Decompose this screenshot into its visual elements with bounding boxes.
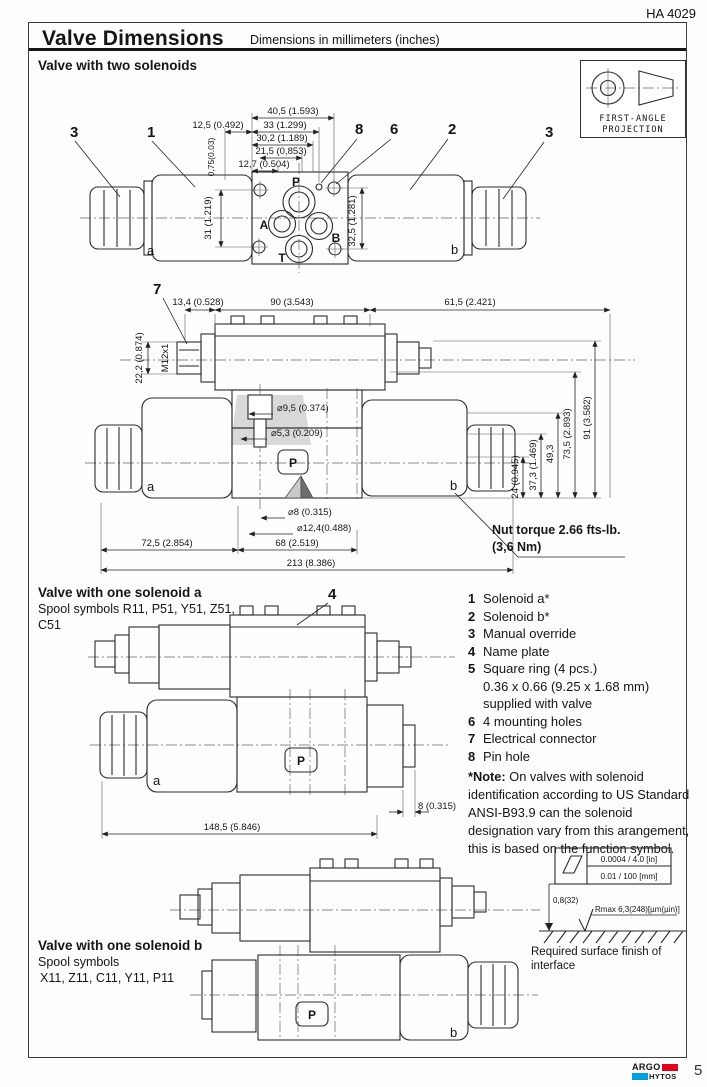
logo-row-top: ARGO <box>632 1063 678 1072</box>
port-label-t: T <box>278 251 286 265</box>
side-label-b: b <box>451 242 458 257</box>
dim-91: 91 (3.582) <box>582 396 593 439</box>
legend-item-5-cont2: supplied with valve <box>468 695 690 713</box>
projection-label-line1: FIRST-ANGLE <box>599 114 666 124</box>
port-p-label: P <box>308 1008 316 1022</box>
legend-text: Electrical connector <box>483 730 596 748</box>
port-p-box: P <box>296 1002 328 1026</box>
dim-22-2: 22,2 (0.874) <box>134 332 145 383</box>
drawing-one-solenoid-b: P b <box>150 855 570 1055</box>
legend-text: Name plate <box>483 643 549 661</box>
dim-148-5: 148,5 (5.846) <box>204 822 261 833</box>
callout-7: 7 <box>153 281 161 298</box>
callout-8: 8 <box>355 121 363 138</box>
dim-61-5: 61,5 (2.421) <box>444 297 495 308</box>
callout-2: 2 <box>448 121 456 138</box>
subheading-one-solenoid-b-1: Spool symbols <box>38 955 119 969</box>
legend-text: Pin hole <box>483 748 530 766</box>
legend-num: 5 <box>468 660 483 678</box>
callout-6: 6 <box>390 121 398 138</box>
projection-symbol-box: FIRST-ANGLE PROJECTION <box>580 60 686 138</box>
side-label-a: a <box>147 243 155 258</box>
legend-item-7: 7Electrical connector <box>468 730 690 748</box>
dim-68: 68 (2.519) <box>275 538 318 549</box>
pin-pointer <box>285 476 313 498</box>
legend-item-5: 5Square ring (4 pcs.) <box>468 660 690 678</box>
legend-text: 4 mounting holes <box>483 713 582 731</box>
side-label-b: b <box>450 478 457 493</box>
legend-num: 3 <box>468 625 483 643</box>
legend-num: 7 <box>468 730 483 748</box>
legend-item-3: 3Manual override <box>468 625 690 643</box>
page-subtitle: Dimensions in millimeters (inches) <box>250 33 440 47</box>
port-p-label: P <box>289 456 297 470</box>
port-label-p: P <box>292 175 300 189</box>
doc-code: HA 4029 <box>646 6 696 21</box>
dim-72-5: 72,5 (2.854) <box>141 538 192 549</box>
footnote-prefix: *Note: <box>468 769 506 784</box>
flatness-row-in: 0.0004 / 4.0 [in] <box>601 855 657 864</box>
logo-text-argo: ARGO <box>632 1063 661 1072</box>
projection-label-line2: PROJECTION <box>602 125 663 135</box>
logo-text-hytos: HYTOS <box>649 1073 677 1081</box>
dim-37-3: 37,3 (1.469) <box>528 439 539 490</box>
port-label-a: A <box>260 218 269 232</box>
projection-symbol-drawing: FIRST-ANGLE PROJECTION <box>581 61 684 136</box>
port-label-b: B <box>332 231 341 245</box>
drawing-one-solenoid-a: P 4 8 (0.315) 148,5 (5.846) a <box>60 585 480 850</box>
legend-num: 1 <box>468 590 483 608</box>
centerlines <box>85 360 635 510</box>
upper-assembly-outline <box>95 606 411 697</box>
legend-item-4: 4Name plate <box>468 643 690 661</box>
centerlines <box>88 657 455 797</box>
dim-90: 90 (3.543) <box>270 297 313 308</box>
lower-assembly-outline <box>202 955 518 1040</box>
callout-4-leader <box>297 603 328 625</box>
dim-73-5: 73,5 (2.893) <box>562 408 573 459</box>
dim-213: 213 (8.386) <box>287 558 336 569</box>
dim-30-2: 30,2 (1.189) <box>256 133 307 144</box>
callout-1: 1 <box>147 124 155 141</box>
logo-blue-block <box>632 1073 648 1080</box>
argo-hytos-logo: ARGO HYTOS <box>632 1063 678 1081</box>
nut-torque-line2: (3,6 Nm) <box>492 540 541 554</box>
dim-49-3: 49,3 <box>545 445 556 464</box>
legend: 1Solenoid a* 2Solenoid b* 3Manual overri… <box>468 590 690 765</box>
dim-24: 24 (0.945) <box>510 455 521 498</box>
legend-num: 6 <box>468 713 483 731</box>
dimension-lines <box>102 770 429 839</box>
legend-text: Manual override <box>483 625 576 643</box>
roughness-rmax: Rmax 6,3(248)[µm(µin)] <box>595 905 680 914</box>
side-label-b: b <box>450 1025 457 1040</box>
dim-33: 33 (1.299) <box>263 120 306 131</box>
page-number: 5 <box>694 1062 702 1079</box>
dim-12-5: 12,5 (0.492) <box>192 120 243 131</box>
legend-item-2: 2Solenoid b* <box>468 608 690 626</box>
upper-assembly-outline <box>177 316 431 390</box>
nut-torque-line1: Nut torque 2.66 fts-lb. <box>492 523 620 537</box>
thread-m12x1: M12x1 <box>160 344 171 373</box>
pin-hole <box>316 184 322 190</box>
logo-red-block <box>662 1064 678 1071</box>
dia-9-5: ⌀9,5 (0.374) <box>277 403 329 414</box>
port-p-box: P <box>278 450 308 474</box>
dia-12-4: ⌀12,4(0.488) <box>297 523 351 534</box>
subheading-one-solenoid-a-2: C51 <box>38 618 61 632</box>
legend-text: Solenoid b* <box>483 608 550 626</box>
legend-num: 4 <box>468 643 483 661</box>
dim-8: 8 (0.315) <box>418 801 456 812</box>
dia-5-3: ⌀5,3 (0.209) <box>271 428 323 439</box>
legend-item-5-cont1: 0.36 x 0.66 (9.25 x 1.68 mm) <box>468 678 690 696</box>
projection-symbol <box>586 68 680 108</box>
dim-31: 31 (1.219) <box>203 196 214 239</box>
centerlines <box>170 910 540 1039</box>
heading-two-solenoids: Valve with two solenoids <box>38 58 197 73</box>
dim-32-5: 32,5 (1.281) <box>347 195 358 246</box>
dim-13-4: 13,4 (0.528) <box>172 297 223 308</box>
dim-40-5: 40,5 (1.593) <box>267 106 318 117</box>
flatness-row-mm: 0.01 / 100 [mm] <box>601 872 658 881</box>
logo-row-bottom: HYTOS <box>632 1072 678 1081</box>
legend-num: 8 <box>468 748 483 766</box>
legend-item-6: 64 mounting holes <box>468 713 690 731</box>
side-label-a: a <box>153 773 161 788</box>
side-label-a: a <box>147 479 155 494</box>
dim-21-5: 21,5 (0,853) <box>255 146 306 157</box>
dim-0-75: 0,75(0.03) <box>206 137 216 176</box>
legend-item-8: 8Pin hole <box>468 748 690 766</box>
dia-8: ⌀8 (0.315) <box>288 507 332 518</box>
dim-12-7: 12,7 (0.504) <box>238 159 289 170</box>
callout-3-left: 3 <box>70 124 78 141</box>
drawing-two-solenoids-side-view: P <box>35 278 655 578</box>
legend-num: 2 <box>468 608 483 626</box>
callout-3-right: 3 <box>545 124 553 141</box>
title-divider <box>29 48 686 51</box>
legend-item-1: 1Solenoid a* <box>468 590 690 608</box>
callout-4: 4 <box>328 586 337 603</box>
port-p-label: P <box>297 754 305 768</box>
legend-text: Square ring (4 pcs.) <box>483 660 597 678</box>
catalog-page: HA 4029 Valve Dimensions Dimensions in m… <box>0 0 707 1087</box>
upper-assembly-outline <box>180 859 486 952</box>
lower-assembly-outline <box>100 697 415 792</box>
drawing-two-solenoids-top-view: 40,5 (1.593) 12,5 (0.492) 33 (1.299) 30,… <box>35 95 580 280</box>
legend-text: Solenoid a* <box>483 590 550 608</box>
